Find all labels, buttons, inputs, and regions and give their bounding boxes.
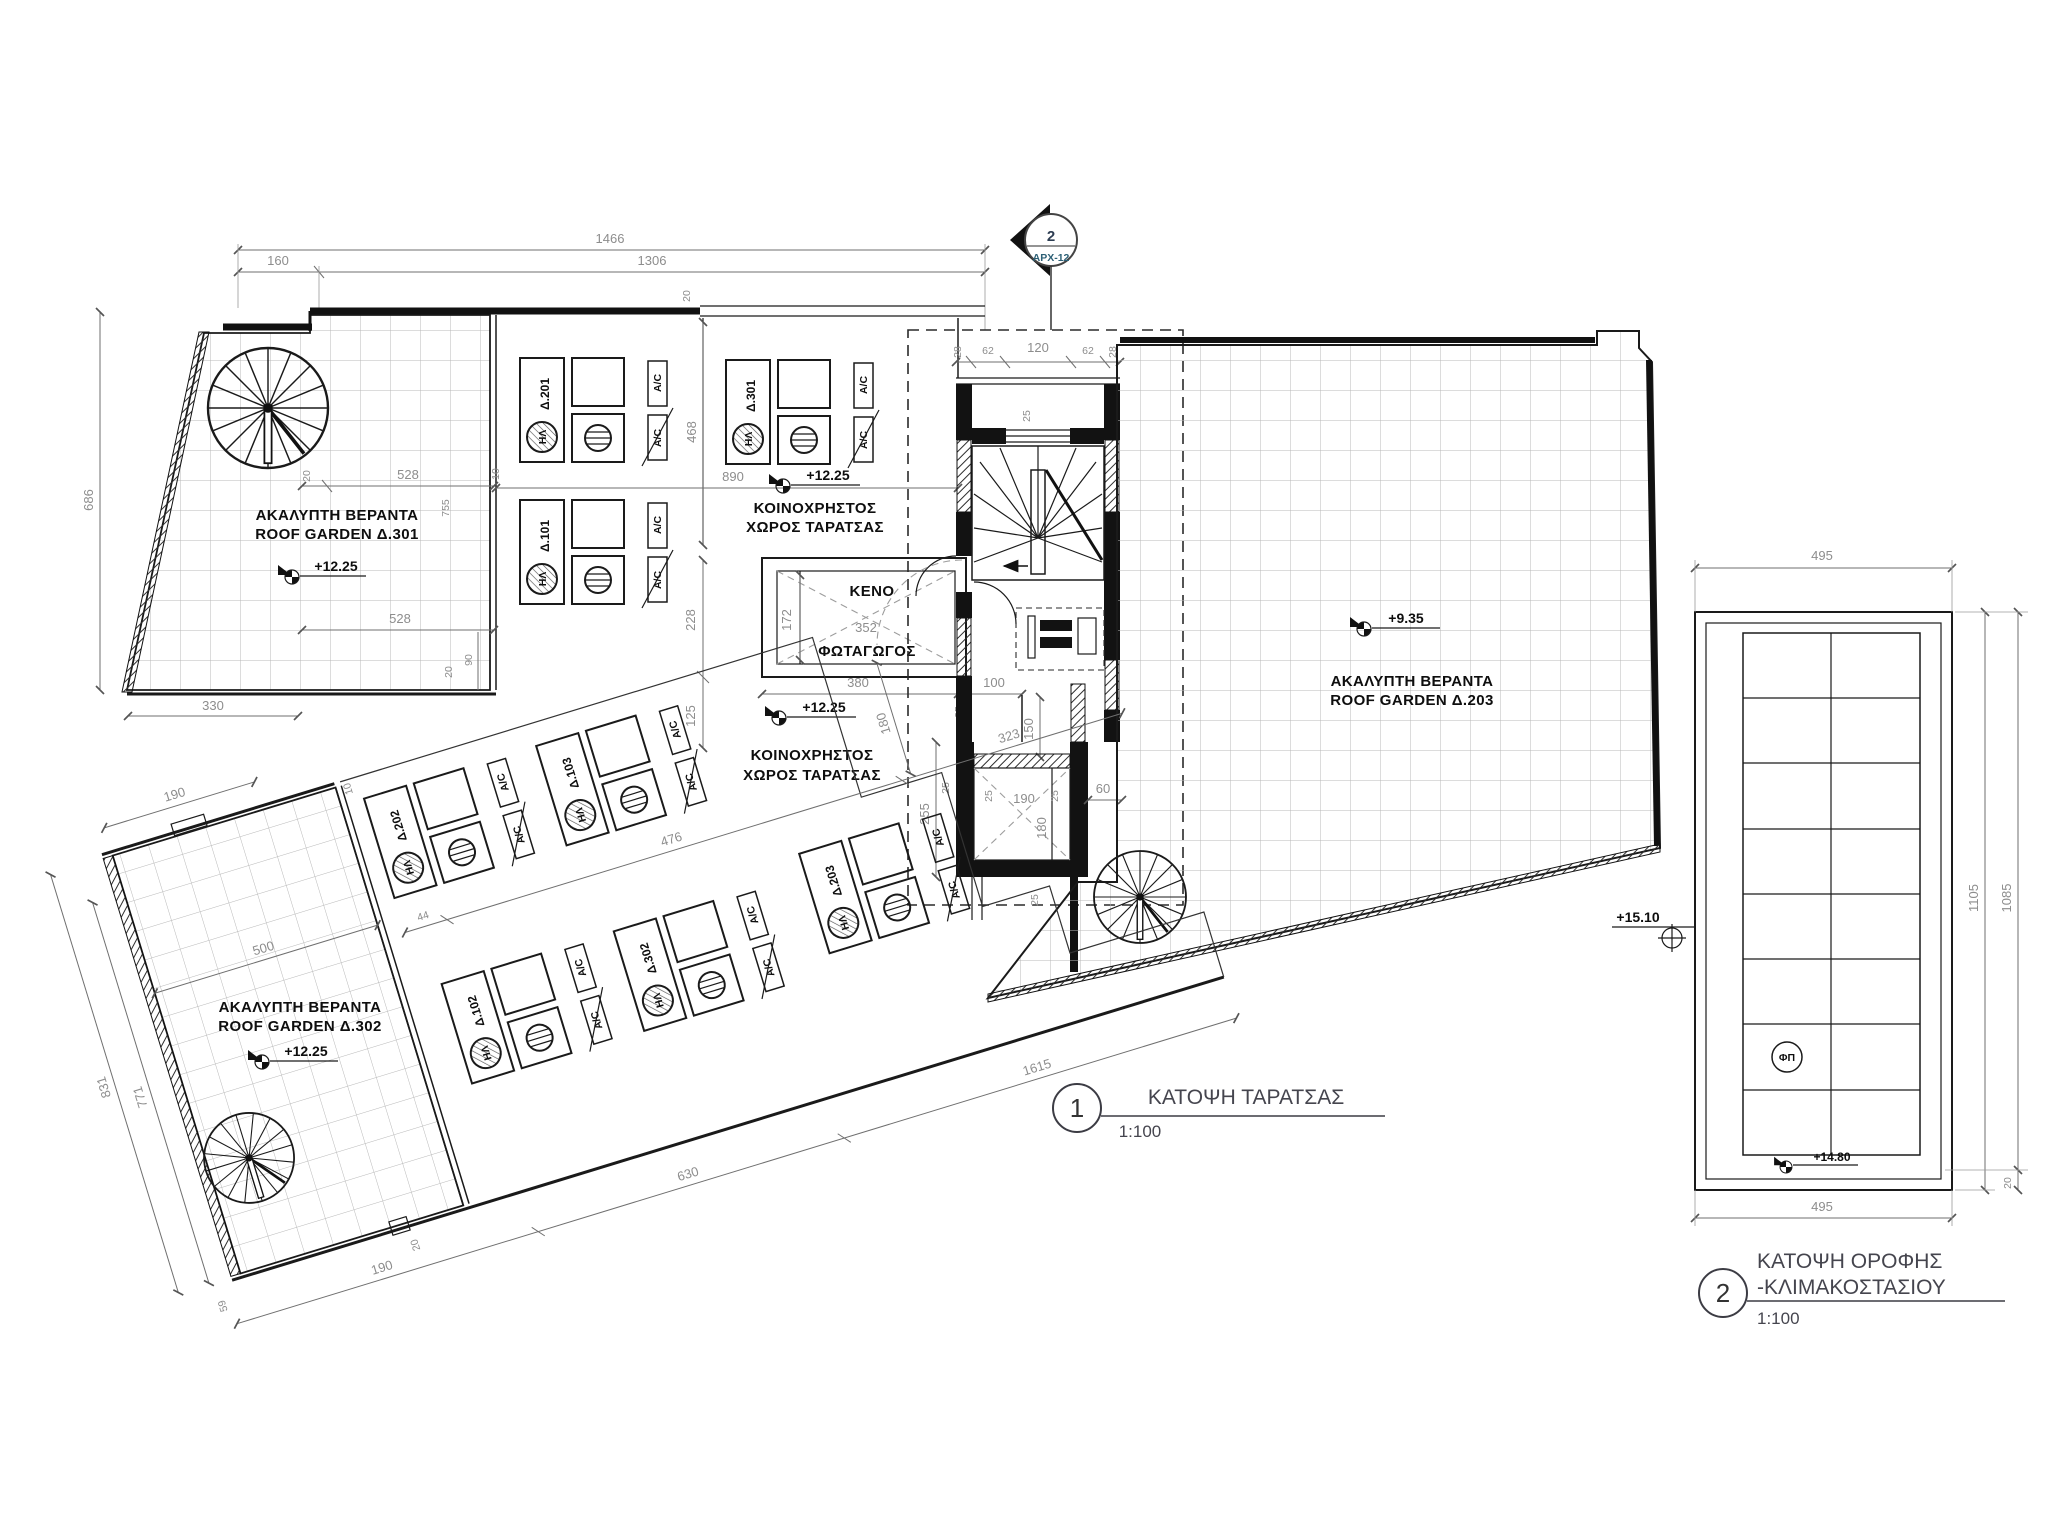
dim-label: 62 — [982, 345, 994, 357]
room-label: ΑΚΑΛΥΠΤΗ ΒΕΡΑΝΤΑ — [219, 999, 382, 1016]
dim-label: 20 — [443, 666, 455, 678]
dim-label: 630 — [675, 1163, 700, 1184]
level-value: +12.25 — [284, 1043, 327, 1059]
plan-number: 1 — [1070, 1093, 1084, 1123]
dim-label: 755 — [440, 499, 452, 517]
dim-label: 190 — [369, 1257, 394, 1278]
dim-label: 255 — [917, 803, 932, 825]
level-value: +12.25 — [314, 558, 357, 574]
elevator-machine-icon — [1016, 608, 1104, 670]
dim-label: 1615 — [1021, 1056, 1053, 1079]
unit-label: Δ.203 — [822, 863, 845, 898]
room-label: ΚΟΙΝΟΧΡΗΣΤΟΣ — [751, 747, 874, 764]
dim-label: 228 — [683, 609, 698, 631]
dim-label: 25 — [1029, 894, 1041, 906]
dim-label: 1466 — [596, 231, 625, 246]
upper-units-zone: Δ.201 Δ.301 Δ.101 468 890 228 125 +12.25… — [496, 306, 985, 748]
unit-label: Δ.301 — [744, 380, 758, 412]
unit-label: Δ.101 — [538, 520, 552, 552]
dim-label: 25 — [1021, 410, 1033, 422]
room-label: ROOF GARDEN Δ.203 — [1330, 692, 1493, 709]
section-number: 2 — [1047, 228, 1055, 245]
unit-label: Δ.202 — [387, 808, 410, 843]
room-label: ΑΚΑΛΥΠΤΗ ΒΕΡΑΝΤΑ — [1331, 673, 1494, 690]
skylight-symbol: ΦΠ — [1779, 1052, 1795, 1064]
plan-scale: 1:100 — [1757, 1309, 1800, 1328]
level-value: +14.80 — [1813, 1150, 1850, 1164]
room-label: ΑΚΑΛΥΠΤΗ ΒΕΡΑΝΤΑ — [256, 507, 419, 524]
dim-label: 190 — [162, 784, 187, 805]
room-label: ΚΕΝΟ — [850, 583, 895, 600]
dim-label: 180 — [1034, 817, 1049, 839]
dim-label: 495 — [1811, 1199, 1833, 1214]
level-value: +12.25 — [802, 699, 845, 715]
plan-scale: 1:100 — [1119, 1122, 1162, 1141]
drawing-sheet: ΗΛ A/C A/C 1466 160 1306 — [0, 0, 2048, 1536]
floor-plan-canvas: ΗΛ A/C A/C 1466 160 1306 — [0, 0, 2048, 1536]
dim-label: 1105 — [1966, 884, 1981, 912]
section-marker: 2 ΑΡΧ-12 — [1010, 204, 1077, 330]
plan2-title: 2 ΚΑΤΟΨΗ ΟΡΟΦΗΣ -ΚΛΙΜΑΚΟΣΤΑΣΙΟΥ 1:100 — [1699, 1250, 2005, 1328]
dim-label: 323 — [996, 725, 1021, 746]
dim-label: 380 — [847, 675, 869, 690]
dim-label: 10 — [341, 781, 356, 796]
dim-label: 28 — [952, 346, 964, 358]
plan-number: 2 — [1716, 1278, 1730, 1308]
dim-label: 160 — [267, 253, 289, 268]
level-value: +15.10 — [1616, 909, 1659, 925]
dim-label: 495 — [1811, 548, 1833, 563]
dim-label: 120 — [1027, 340, 1049, 355]
level-value: +9.35 — [1388, 610, 1424, 626]
dim-label: 1306 — [638, 253, 667, 268]
dim-label: 528 — [389, 611, 411, 626]
dim-label: 25 — [983, 790, 995, 802]
dim-label: 60 — [1096, 781, 1110, 796]
dim-label: 10 — [490, 468, 502, 480]
plan-name: ΚΑΤΟΨΗ ΤΑΡΑΤΣΑΣ — [1148, 1086, 1344, 1109]
dim-label: 330 — [202, 698, 224, 713]
level-value: +12.25 — [806, 467, 849, 483]
dim-label: 100 — [983, 675, 1005, 690]
plan1-title: 1 ΚΑΤΟΨΗ ΤΑΡΑΤΣΑΣ 1:100 — [1053, 1084, 1385, 1141]
dim-label: 125 — [683, 705, 698, 727]
dim-label: 172 — [779, 609, 794, 631]
dim-label: 90 — [463, 654, 475, 666]
dim-label: 528 — [397, 467, 419, 482]
room-label: ROOF GARDEN Δ.301 — [255, 526, 418, 543]
roof-terrace-301: ΑΚΑΛΥΠΤΗ ΒΕΡΑΝΤΑ ROOF GARDEN Δ.301 +12.2… — [122, 311, 700, 694]
dim-label: 20 — [408, 1237, 423, 1252]
dim-label: 180 — [873, 711, 894, 736]
dim-label: 352 — [855, 620, 877, 635]
stair-roof-plan: ΦΠ +14.80 +15.10 495 495 1105 1085 20 — [1612, 548, 2028, 1226]
dim-label: 25 — [1049, 790, 1061, 802]
dim-label: 890 — [722, 469, 744, 484]
room-label: ΧΩΡΟΣ ΤΑΡΑΤΣΑΣ — [746, 519, 884, 536]
dim-label: 20 — [301, 470, 313, 482]
section-sheet: ΑΡΧ-12 — [1033, 252, 1070, 264]
dim-label: 44 — [416, 909, 431, 924]
dim-label: 150 — [1021, 718, 1036, 740]
room-label: ROOF GARDEN Δ.302 — [218, 1018, 381, 1035]
plan-name: ΚΑΤΟΨΗ ΟΡΟΦΗΣ — [1757, 1250, 1942, 1273]
room-label: ΧΩΡΟΣ ΤΑΡΑΤΣΑΣ — [743, 767, 881, 784]
dim-label: 59 — [216, 1298, 231, 1313]
dim-label: 20 — [681, 290, 693, 302]
dim-label: 1085 — [1999, 884, 2014, 913]
plan-name: -ΚΛΙΜΑΚΟΣΤΑΣΙΟΥ — [1757, 1276, 1946, 1299]
light-well: ΚΕΝΟ ΦΩΤΑΓΩΓΟΣ 352 172 380 100 25 +12.25… — [743, 558, 1022, 784]
dim-label: 771 — [130, 1085, 151, 1110]
unit-label: Δ.102 — [465, 993, 488, 1028]
dim-label: 20 — [2002, 1177, 2014, 1189]
dim-label: 831 — [93, 1075, 114, 1100]
dim-label: 468 — [684, 421, 699, 443]
room-label: ΚΟΙΝΟΧΡΗΣΤΟΣ — [754, 500, 877, 517]
room-label: ΦΩΤΑΓΩΓΟΣ — [818, 643, 916, 660]
dim-label: 686 — [81, 489, 96, 511]
dim-label: 190 — [1013, 791, 1035, 806]
unit-label: Δ.302 — [637, 941, 660, 976]
unit-label: Δ.201 — [538, 378, 552, 410]
dim-label: 62 — [1082, 345, 1094, 357]
unit-label: Δ.103 — [559, 755, 582, 790]
dim-label: 476 — [659, 829, 684, 850]
